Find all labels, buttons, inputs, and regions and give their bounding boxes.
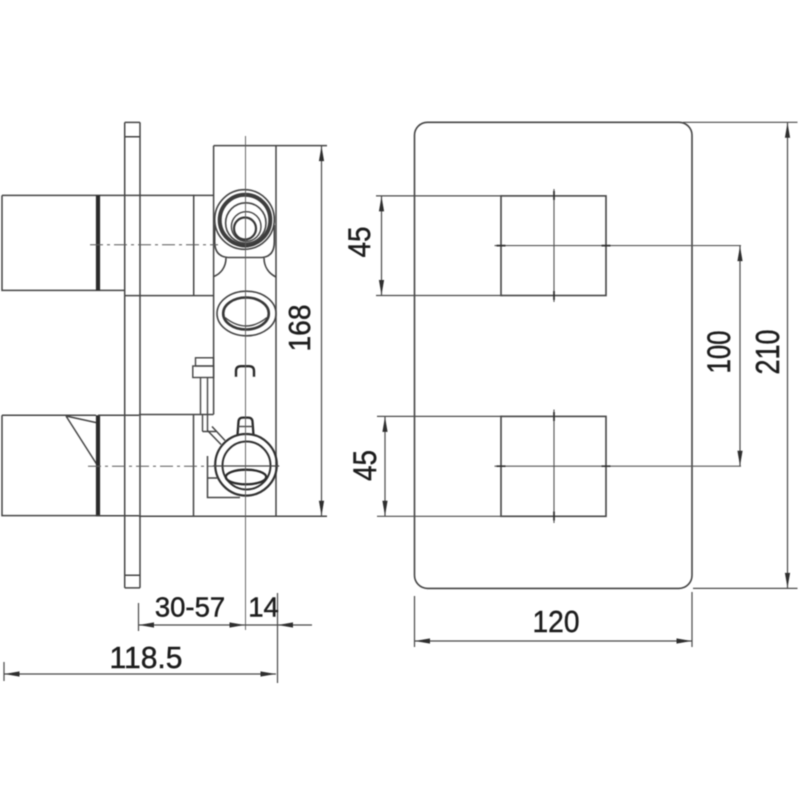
svg-text:45: 45 — [341, 227, 377, 258]
svg-text:30-57: 30-57 — [155, 592, 225, 623]
svg-text:14: 14 — [248, 592, 279, 623]
svg-text:118.5: 118.5 — [110, 640, 183, 675]
svg-text:45: 45 — [347, 450, 383, 481]
svg-text:100: 100 — [701, 331, 737, 374]
svg-text:210: 210 — [749, 330, 786, 375]
svg-text:168: 168 — [283, 305, 317, 352]
svg-text:120: 120 — [533, 604, 580, 639]
